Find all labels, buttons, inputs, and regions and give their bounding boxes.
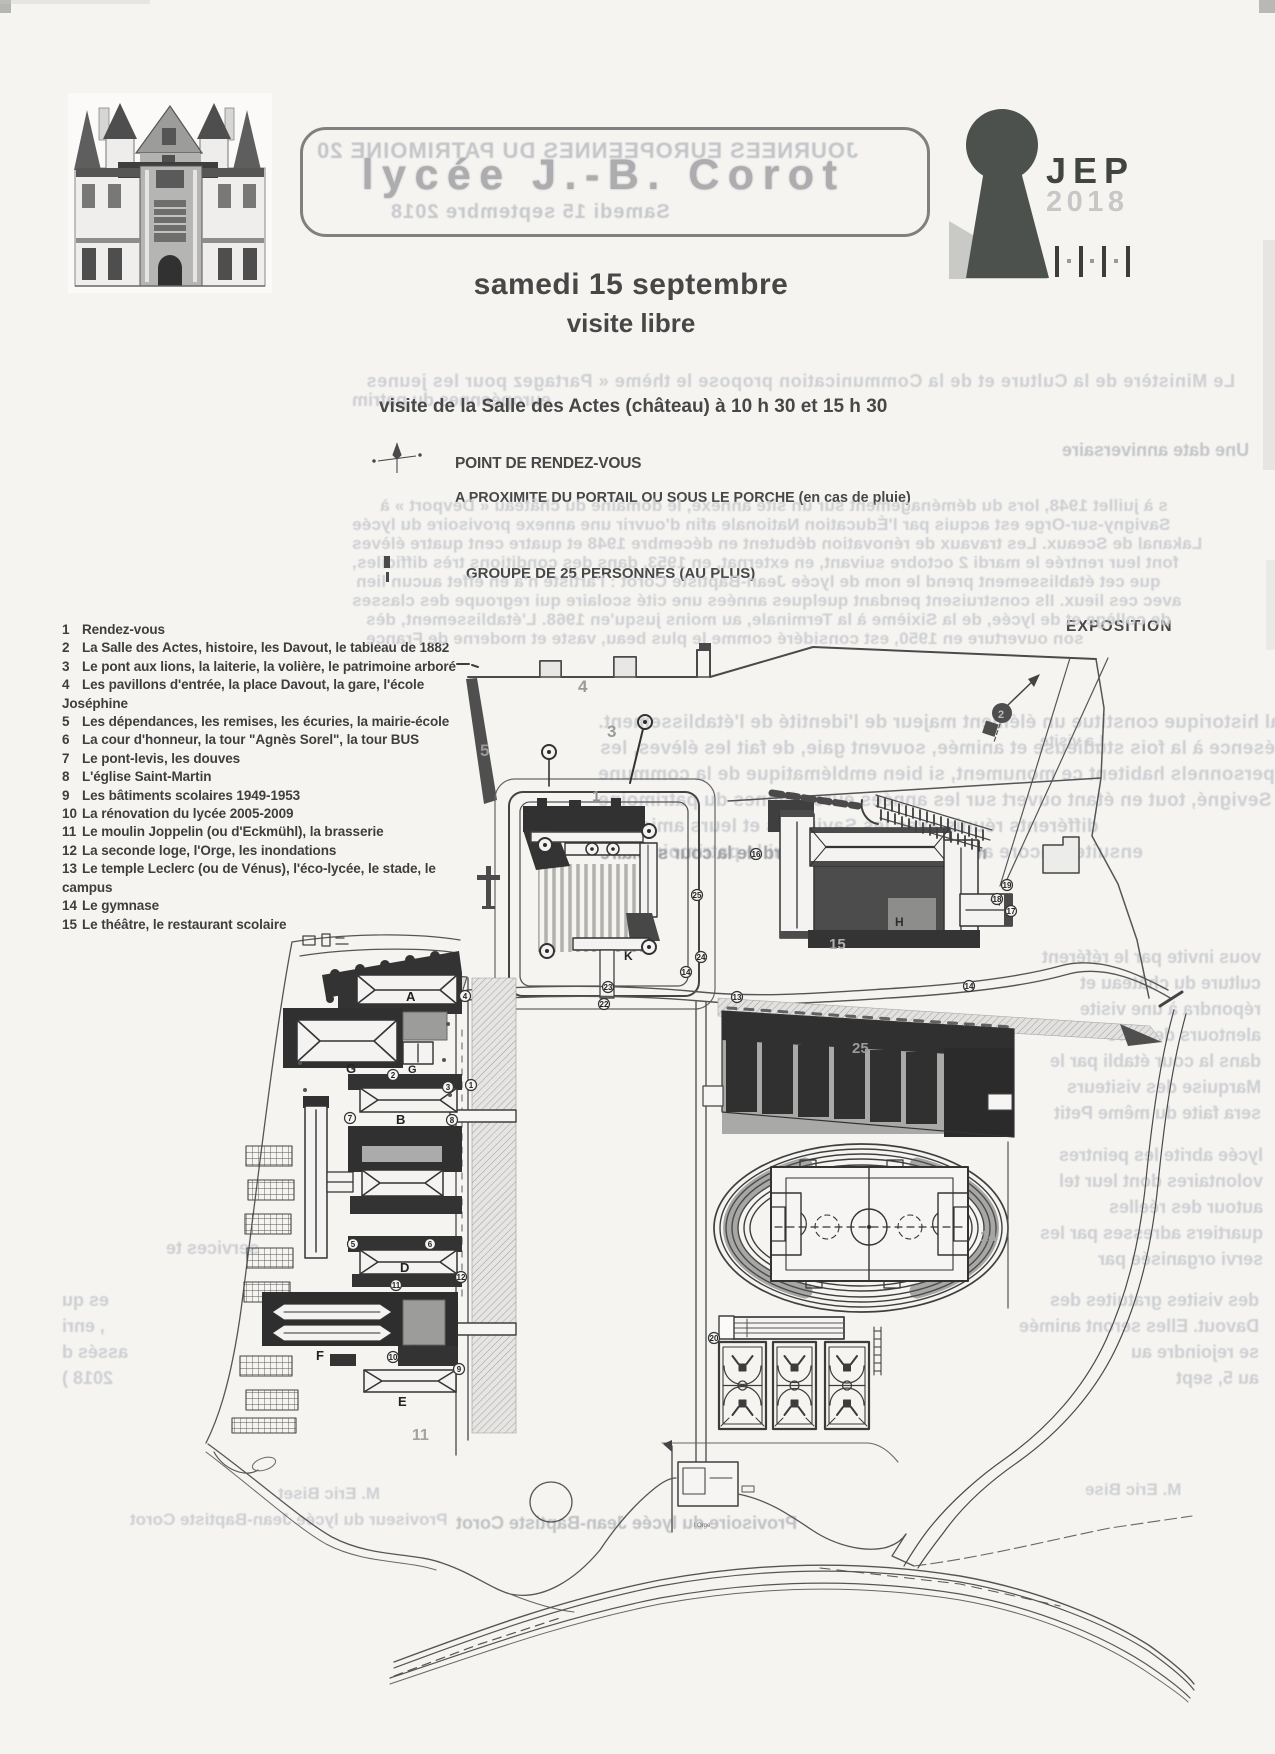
svg-text:6: 6 [428,1240,433,1249]
svg-text:25: 25 [852,1040,869,1057]
svg-text:8: 8 [450,1116,455,1125]
svg-text:23: 23 [604,983,613,992]
svg-text:25: 25 [693,891,702,900]
svg-text:17: 17 [1007,907,1016,916]
svg-text:22: 22 [600,1000,609,1009]
svg-text:11: 11 [412,1427,429,1444]
svg-text:11: 11 [392,1281,401,1290]
svg-text:3: 3 [607,722,616,741]
svg-text:H: H [895,915,904,929]
svg-text:G: G [346,1061,356,1076]
svg-text:B: B [396,1112,405,1127]
svg-text:2: 2 [391,1071,396,1080]
svg-text:10: 10 [389,1353,398,1362]
svg-text:4: 4 [578,677,588,696]
svg-text:20: 20 [710,1334,719,1343]
svg-text:24: 24 [697,953,706,962]
svg-text:l Orge: l Orge [694,1523,711,1529]
svg-text:4: 4 [463,992,468,1001]
svg-text:14: 14 [965,982,974,991]
svg-text:13: 13 [733,993,742,1002]
svg-text:9: 9 [457,1365,462,1374]
svg-text:14: 14 [980,1228,997,1245]
svg-text:5: 5 [480,741,489,760]
svg-text:7: 7 [348,1114,353,1123]
svg-text:F: F [316,1348,324,1363]
svg-text:19: 19 [1003,881,1012,890]
svg-text:12: 12 [457,1273,466,1282]
svg-text:1: 1 [469,1081,474,1090]
svg-text:18: 18 [993,895,1002,904]
svg-text:A: A [406,989,416,1004]
svg-text:5: 5 [351,1240,356,1249]
svg-text:E: E [398,1394,407,1409]
svg-text:16: 16 [752,850,761,859]
svg-text:1: 1 [592,788,600,805]
svg-text:14: 14 [682,968,691,977]
svg-text:D: D [400,1260,409,1275]
svg-text:K: K [624,949,633,963]
svg-text:3: 3 [446,1083,451,1092]
svg-text:2: 2 [998,709,1004,721]
svg-text:15: 15 [829,936,846,953]
